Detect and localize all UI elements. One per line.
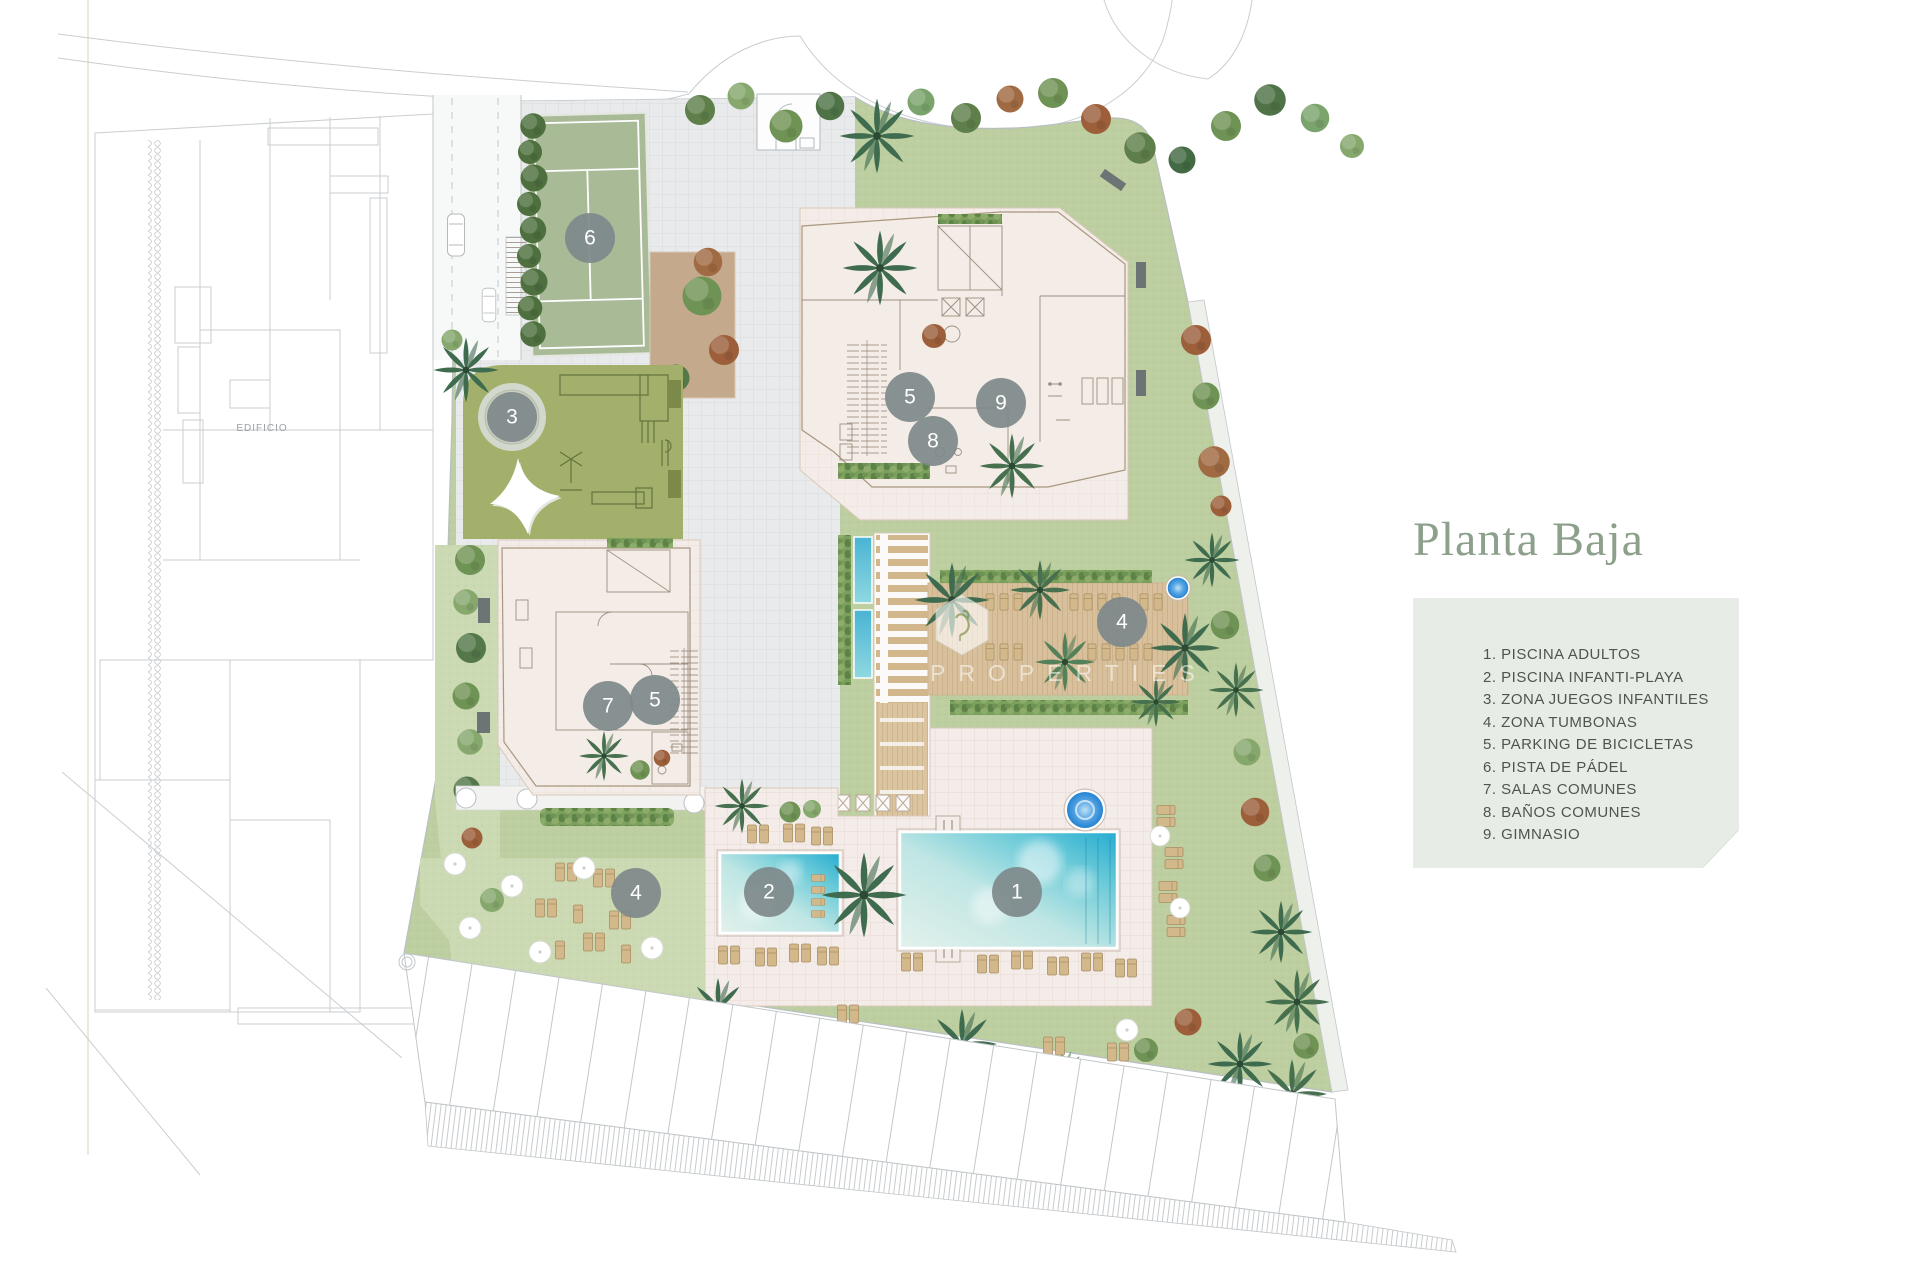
marker-bicicletas-sur: 5: [630, 675, 680, 725]
legend-list: 1. PISCINA ADULTOS 2. PISCINA INFANTI-PL…: [1413, 598, 1739, 847]
lap-pool: [854, 610, 872, 678]
access-road: [433, 95, 526, 360]
marker-piscina-adultos: 1: [992, 867, 1042, 917]
car-icon: [482, 288, 496, 322]
hedge-row: [540, 808, 674, 826]
palm-icon: [715, 779, 770, 834]
marker-tumbonas-deck: 4: [1097, 597, 1147, 647]
legend-item-banos-comunes: 8. BAÑOS COMUNES: [1483, 802, 1739, 825]
marker-piscina-infantil: 2: [744, 867, 794, 917]
deck-bridge: [876, 535, 928, 703]
bench: [1136, 370, 1146, 396]
svg-text:3: 3: [506, 406, 518, 429]
marker-banos-comunes: 8: [908, 416, 958, 466]
marker-padel: 6: [565, 213, 615, 263]
palm-icon: [980, 434, 1045, 499]
legend-item-piscina-adultos: 1. PISCINA ADULTOS: [1483, 644, 1739, 667]
palm-icon: [579, 731, 629, 781]
car-icon: [448, 214, 465, 256]
palm-icon: [843, 231, 918, 306]
svg-text:5: 5: [649, 689, 661, 712]
svg-text:9: 9: [995, 392, 1007, 415]
legend-item-zona-juegos: 3. ZONA JUEGOS INFANTILES: [1483, 689, 1739, 712]
jacuzzi: [1064, 789, 1106, 831]
hedge-row: [607, 538, 673, 548]
svg-text:5: 5: [904, 386, 916, 409]
palm-icon: [822, 853, 907, 938]
neighbor-building-label: EDIFICIO: [236, 423, 287, 434]
hedge-row: [938, 214, 1002, 224]
svg-text:2: 2: [763, 881, 775, 904]
lap-pool: [854, 537, 872, 603]
marker-zona-juegos: 3: [487, 392, 537, 442]
bench: [1136, 262, 1146, 288]
marker-bicicletas-norte: 5: [885, 372, 935, 422]
svg-text:8: 8: [927, 430, 939, 453]
marker-salas-comunes: 7: [583, 681, 633, 731]
plunge-pool: [1167, 577, 1189, 599]
building-salas-comunes: [498, 538, 700, 795]
bench: [478, 598, 490, 623]
legend-item-parking-bicicletas: 5. PARKING DE BICICLETAS: [1483, 734, 1739, 757]
path-node: [684, 793, 704, 813]
hedge-row: [838, 535, 851, 685]
bench: [477, 712, 490, 733]
svg-text:4: 4: [630, 882, 642, 905]
sun-deck: PROPERTIES: [915, 560, 1221, 727]
brand-watermark-text: PROPERTIES: [930, 660, 1208, 686]
legend-item-pista-padel: 6. PISTA DE PÁDEL: [1483, 757, 1739, 780]
legend-item-zona-tumbonas: 4. ZONA TUMBONAS: [1483, 712, 1739, 735]
legend-panel: 1. PISCINA ADULTOS 2. PISCINA INFANTI-PL…: [1413, 598, 1739, 868]
site-plan-page: EDIFICIO: [0, 0, 1920, 1280]
svg-text:4: 4: [1116, 611, 1128, 634]
svg-text:7: 7: [602, 695, 614, 718]
hedge-row: [838, 463, 930, 479]
svg-text:1: 1: [1011, 881, 1023, 904]
legend-item-salas-comunes: 7. SALAS COMUNES: [1483, 779, 1739, 802]
legend-item-gimnasio: 9. GIMNASIO: [1483, 824, 1739, 847]
page-title: Planta Baja: [1413, 512, 1644, 567]
marker-gimnasio: 9: [976, 378, 1026, 428]
neighbor-parcel: EDIFICIO: [95, 114, 433, 1024]
palm-icon: [1010, 560, 1070, 620]
legend-item-piscina-infantil: 2. PISCINA INFANTI-PLAYA: [1483, 667, 1739, 690]
palm-icon: [434, 338, 499, 403]
path-node: [456, 788, 476, 808]
marker-tumbonas-cesped: 4: [611, 868, 661, 918]
svg-text:6: 6: [584, 227, 596, 250]
